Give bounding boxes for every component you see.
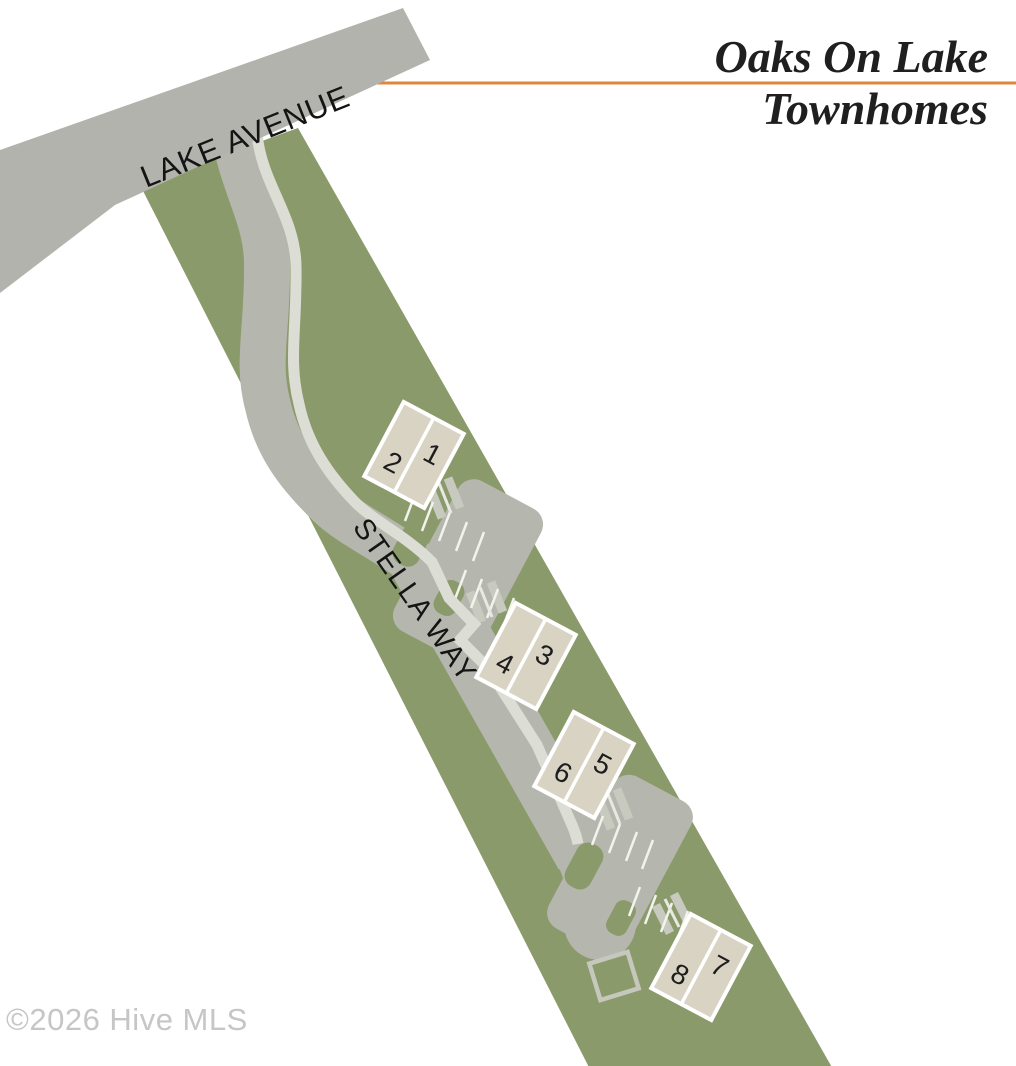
site-plan: 1 2 3 4 5 6 7 8 STELLA WAY LAKE AVENUE O… [0,0,1016,1066]
utility-pad-outline [589,952,638,1000]
utility-pad [589,952,638,1000]
title-line-1: Oaks On Lake [715,31,988,82]
site-plan-svg: 1 2 3 4 5 6 7 8 STELLA WAY LAKE AVENUE O… [0,0,1016,1066]
copyright-watermark: ©2026 Hive MLS [6,1002,248,1037]
title-line-2: Townhomes [762,83,988,134]
